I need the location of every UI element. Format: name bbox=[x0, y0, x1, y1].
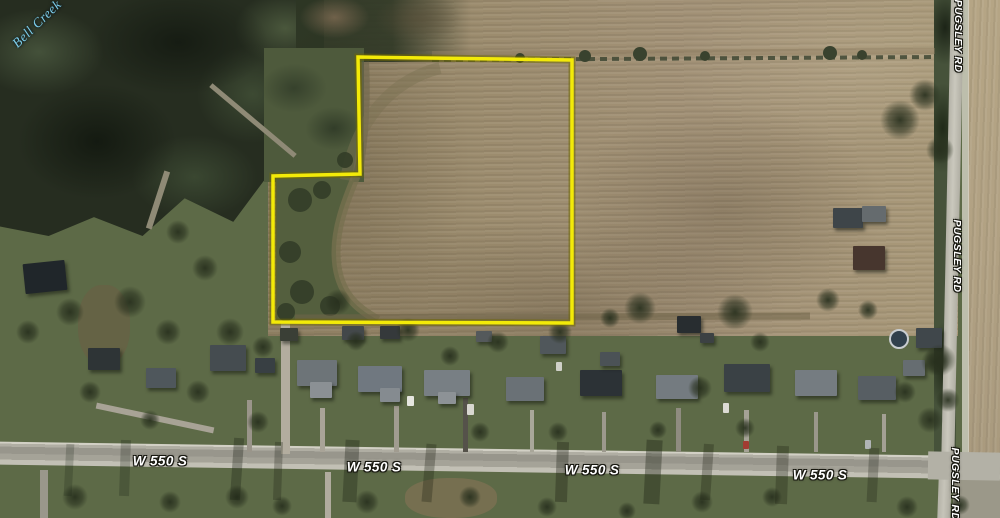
road-label-w550s-2: W 550 S bbox=[347, 460, 402, 475]
road-label-w550s-3: W 550 S bbox=[565, 463, 620, 478]
road-label-w550s-1: W 550 S bbox=[133, 454, 188, 469]
road-label-pugsley-1: PUGSLEY RD bbox=[952, 0, 964, 73]
road-label-w550s-4: W 550 S bbox=[793, 468, 848, 483]
parcel-outline bbox=[273, 57, 572, 323]
road-label-pugsley-3: PUGSLEY RD bbox=[949, 447, 961, 518]
parcel-outline-halo bbox=[273, 57, 572, 323]
map-canvas[interactable]: Bell Creek W 550 S W 550 S W 550 S W 550… bbox=[0, 0, 1000, 518]
parcel-outline-layer bbox=[0, 0, 1000, 518]
road-label-pugsley-2: PUGSLEY RD bbox=[951, 219, 963, 292]
